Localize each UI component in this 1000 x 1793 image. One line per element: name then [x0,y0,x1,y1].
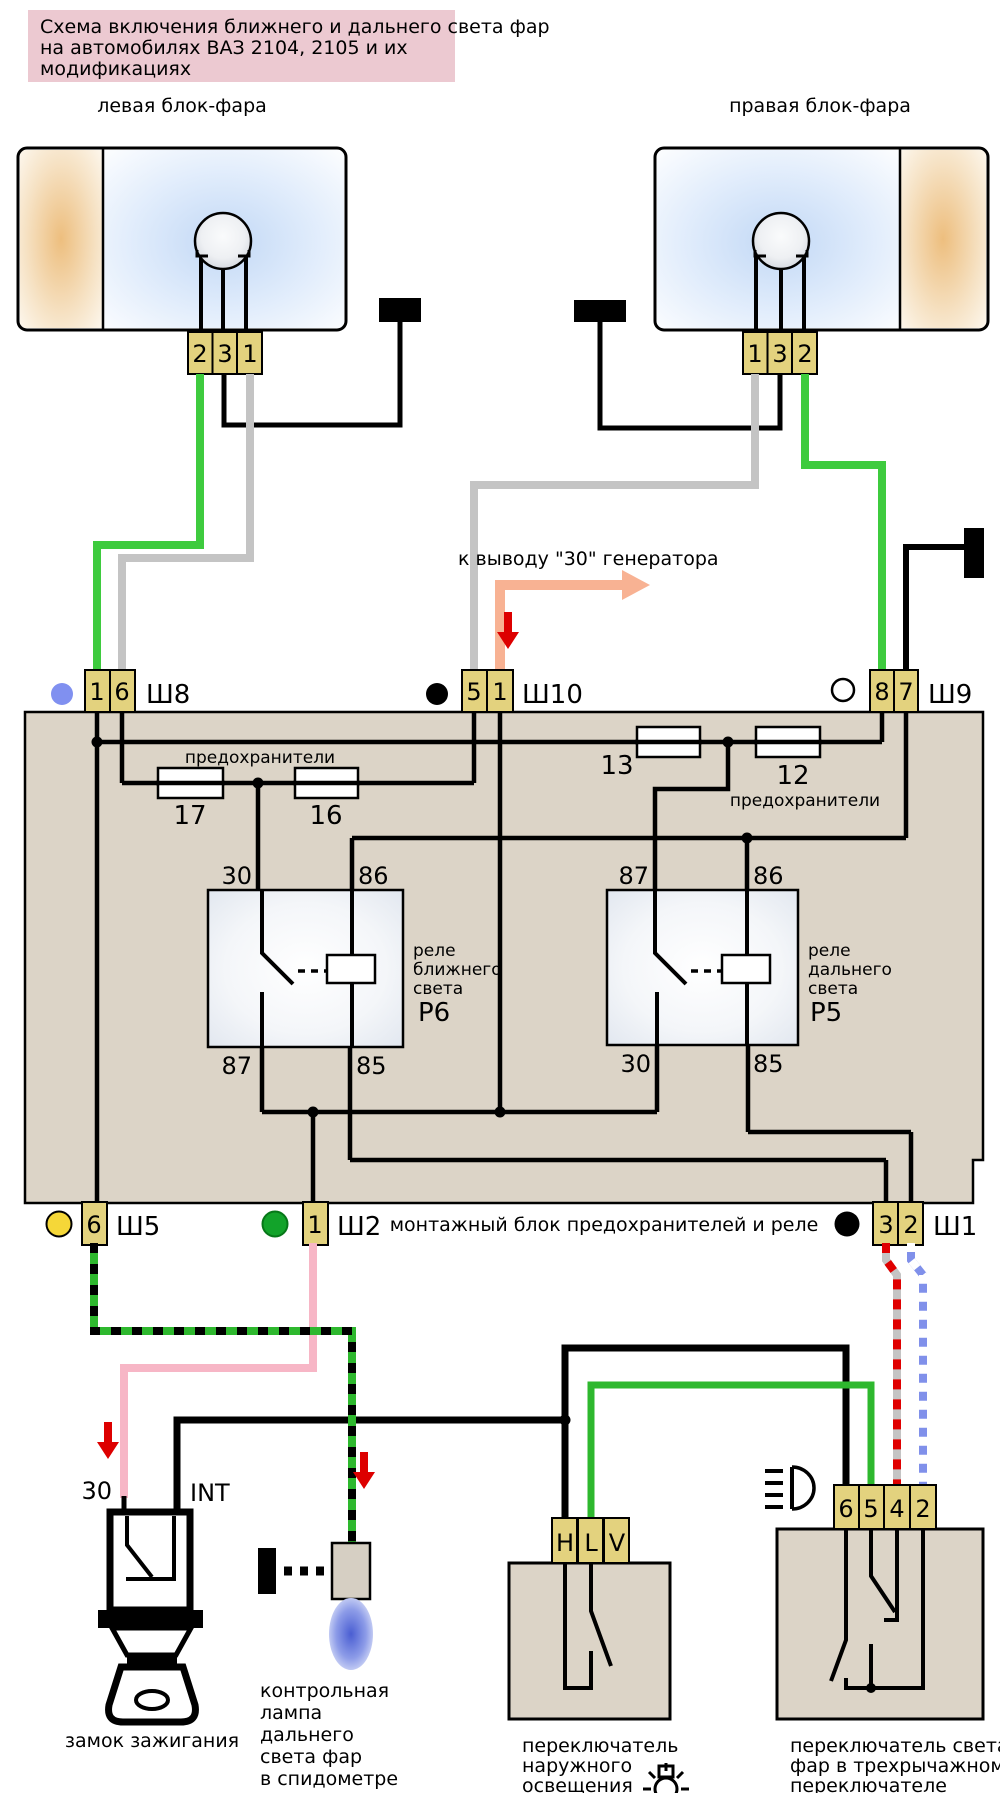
relay-coil-icon [327,955,375,983]
connector-label: Ш5 [116,1212,160,1242]
beam-switch: 6 5 4 2 переключатель света фар в трехры… [765,1467,1000,1793]
relay-pin: 30 [221,862,252,890]
pin-label: 6 [86,1211,101,1239]
pin-label: 5 [466,678,481,706]
right-headlight: 1 3 2 [655,148,988,374]
wiring-diagram-page: Схема включения ближнего и дальнего свет… [0,0,1000,1793]
turn-signal-section [900,150,986,328]
relay-coil-icon [722,955,770,983]
marker-black-icon [426,683,448,705]
fuses-group-label-left: предохранители [185,748,335,768]
relay-pin: 30 [620,1050,651,1078]
lamp-rays-icon [643,1763,689,1793]
pin-label: H [556,1529,574,1557]
wire-gray-left [122,374,250,674]
relay-desc: ближнего [413,960,502,980]
pin-label: 1 [242,340,257,368]
left-headlight: 2 3 1 [18,148,346,374]
fuse-12-label: 12 [776,761,809,791]
connector-label: Ш1 [933,1212,977,1242]
lamp-label: лампа [260,1702,322,1724]
pin-label: 6 [114,678,129,706]
ground-icon [574,300,626,322]
light-switch: H L V переключатель наружного освещения [509,1518,689,1793]
right-headlight-connector: 1 3 2 [743,332,817,374]
connector-sh10: 5 1 Ш10 [426,670,583,712]
pin-label: 2 [903,1211,918,1239]
relay-pin: 85 [356,1052,387,1080]
relay-name: Р5 [810,998,842,1028]
pin-label: 2 [915,1495,930,1523]
lamp-label: света фар [260,1746,362,1768]
connector-label: Ш8 [146,680,190,710]
ground-icon [258,1548,276,1594]
generator-note: к выводу "30" генератора [458,548,719,570]
wiring-diagram: Схема включения ближнего и дальнего свет… [0,0,1000,1793]
pin-label: 3 [217,340,232,368]
fuse-13-label: 13 [600,751,633,781]
pin-label: 1 [307,1211,322,1239]
connector-label: Ш10 [522,680,583,710]
relay-pin: 87 [221,1052,252,1080]
relay-name: Р6 [418,998,450,1028]
title-line-3: модификациях [40,58,191,80]
pin-label: 1 [89,678,104,706]
ground-icon [379,298,421,322]
lamp-bulb-icon [329,1598,373,1670]
marker-green-icon [263,1212,288,1237]
pin-label: 1 [492,678,507,706]
wire-pink [124,1243,313,1498]
relay-desc: дальнего [808,960,892,980]
terminal-30-label: 30 [81,1477,112,1505]
fuses-group-label-right: предохранители [730,791,880,811]
wire-green-right [805,374,882,674]
left-headlight-label: левая блок-фара [97,95,267,117]
right-headlight-label: правая блок-фара [729,95,911,117]
pin-label: 1 [747,340,762,368]
marker-yellow-icon [47,1212,72,1237]
relay-pin: 86 [753,862,784,890]
pin-label: 2 [797,340,812,368]
pin-label: L [584,1529,598,1557]
beam-switch-label: переключателе [790,1775,947,1793]
title-box: Схема включения ближнего и дальнего свет… [28,10,550,82]
fuse-16-label: 16 [309,801,342,831]
terminal-int-label: INT [190,1479,230,1507]
relay-pin: 87 [618,862,649,890]
marker-black-icon [835,1212,860,1237]
low-beam-icon [765,1467,814,1509]
indicator-lamp: контрольная лампа дальнего света фар в с… [258,1543,398,1790]
relay-desc: реле [413,941,456,961]
wire-green-left [97,374,200,674]
pin-label: 3 [772,340,787,368]
pin-label: 6 [838,1495,853,1523]
connector-sh2: 1 Ш2 [263,1202,382,1245]
lamp-label: дальнего [260,1724,354,1746]
beam-switch-label: фар в трехрычажном [790,1755,1000,1777]
lamp-label: контрольная [260,1680,389,1702]
connector-label: Ш9 [928,680,972,710]
connector-label: Ш2 [337,1212,381,1242]
fuse-17-label: 17 [173,801,206,831]
ignition-label: замок зажигания [65,1730,239,1752]
light-switch-label: освещения [522,1775,633,1793]
light-switch-label: переключатель [522,1735,678,1757]
turn-signal-section [20,150,102,328]
bulb-icon [753,213,809,269]
pin-label: 4 [889,1495,904,1523]
connector-sh1: 3 2 Ш1 [835,1202,978,1245]
connector-sh5: 6 Ш5 [47,1202,161,1245]
beam-switch-label: переключатель света [790,1735,1000,1757]
junction-dot [560,1415,571,1426]
bulb-icon [195,213,251,269]
relay-pin: 86 [358,862,389,890]
wire-green-switch [591,1385,871,1518]
lamp-label: в спидометре [260,1768,398,1790]
block-label: монтажный блок предохранителей и реле [390,1214,819,1236]
lamp-holder [332,1543,370,1599]
pin-label: 7 [898,678,913,706]
red-arrow-icon [97,1422,119,1459]
pin-label: 5 [863,1495,878,1523]
light-switch-label: наружного [522,1755,632,1777]
relay-desc: света [413,979,463,999]
pin-label: 2 [192,340,207,368]
ignition-switch: 30 INT замок зажигания [65,1477,239,1752]
arrow-right-icon [622,570,650,600]
relay-desc: света [808,979,858,999]
marker-blue-icon [51,683,73,705]
marker-white-icon [832,679,854,701]
junction-dot [866,1683,876,1693]
wire-generator-feed [500,585,622,670]
left-headlight-connector: 2 3 1 [188,332,262,374]
relay-pin: 85 [753,1050,784,1078]
pin-label: V [609,1529,626,1557]
red-arrow-icon [353,1452,375,1489]
relay-desc: реле [808,941,851,961]
pin-label: 8 [874,678,889,706]
title-line-2: на автомобилях ВАЗ 2104, 2105 и их [40,37,408,59]
connector-sh9: 8 7 Ш9 [832,670,972,712]
pin-label: 3 [878,1211,893,1239]
wire-gray-right [474,374,755,674]
ground-icon [964,528,984,578]
title-line-1: Схема включения ближнего и дальнего свет… [40,16,550,38]
connector-sh8: 1 6 Ш8 [51,670,190,712]
